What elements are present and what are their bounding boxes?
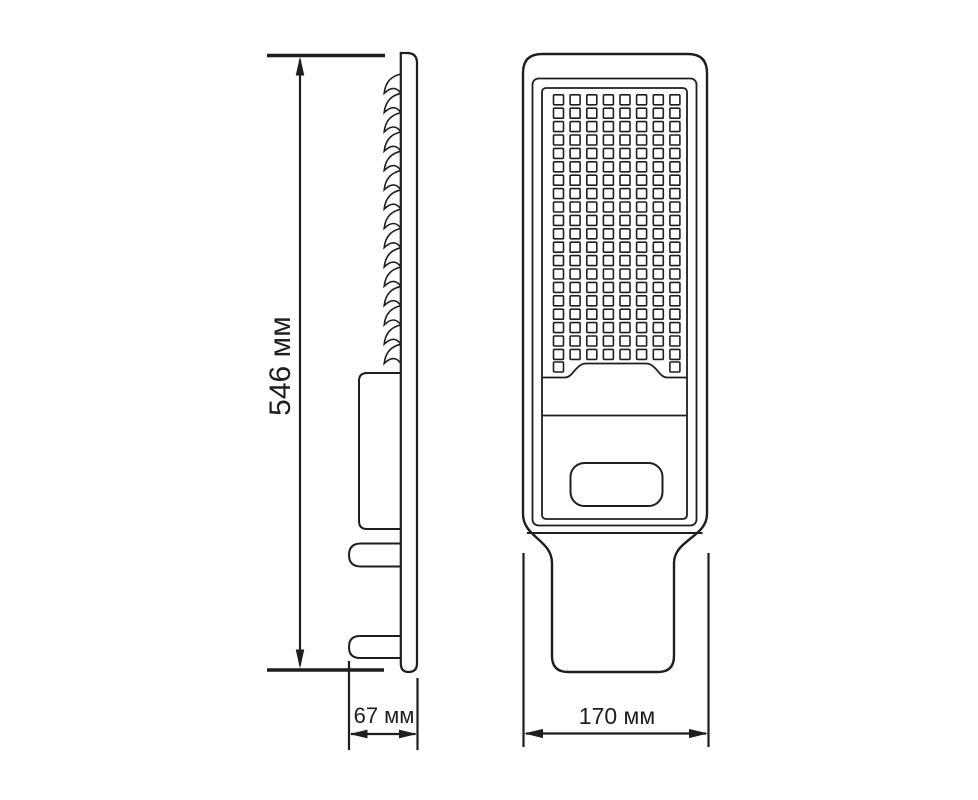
- fin-blade: [384, 151, 401, 170]
- fin-blade: [384, 325, 401, 344]
- fin-blade: [384, 286, 401, 305]
- led-square: [603, 215, 613, 225]
- led-square: [637, 242, 647, 252]
- led-square: [587, 162, 597, 172]
- led-square: [570, 108, 580, 118]
- led-square: [554, 229, 564, 239]
- led-square: [603, 229, 613, 239]
- led-square: [603, 296, 613, 306]
- led-square: [620, 296, 630, 306]
- led-square: [587, 282, 597, 292]
- depth-arrow-left: [350, 730, 368, 739]
- led-square: [570, 269, 580, 279]
- led-square: [620, 108, 630, 118]
- led-square: [570, 229, 580, 239]
- led-square: [554, 269, 564, 279]
- led-square: [587, 269, 597, 279]
- led-square: [587, 202, 597, 212]
- led-square: [653, 135, 663, 145]
- led-square: [620, 95, 630, 105]
- led-square: [570, 282, 580, 292]
- led-square: [653, 202, 663, 212]
- width-arrow-right: [689, 729, 708, 738]
- side-body-slab: [401, 53, 417, 672]
- led-square: [620, 282, 630, 292]
- led-square: [637, 189, 647, 199]
- led-square: [670, 282, 680, 292]
- led-square: [603, 148, 613, 158]
- led-square: [603, 336, 613, 346]
- led-square: [653, 269, 663, 279]
- led-square: [570, 296, 580, 306]
- led-square: [570, 256, 580, 266]
- led-square: [587, 189, 597, 199]
- led-square: [670, 242, 680, 252]
- led-square: [554, 95, 564, 105]
- led-square: [620, 229, 630, 239]
- led-square: [603, 95, 613, 105]
- depth-dim-label: 67 мм: [354, 703, 415, 728]
- led-square: [620, 323, 630, 333]
- led-square: [587, 148, 597, 158]
- front-view: [523, 54, 707, 672]
- led-square: [554, 135, 564, 145]
- led-square: [620, 309, 630, 319]
- led-square: [554, 148, 564, 158]
- led-square: [603, 189, 613, 199]
- led-square: [554, 349, 564, 359]
- led-square: [653, 336, 663, 346]
- led-square: [670, 135, 680, 145]
- led-square: [554, 282, 564, 292]
- led-square: [637, 282, 647, 292]
- led-square: [653, 148, 663, 158]
- led-square: [653, 215, 663, 225]
- led-square: [603, 309, 613, 319]
- led-square: [653, 162, 663, 172]
- led-square: [587, 215, 597, 225]
- led-square: [554, 189, 564, 199]
- led-square: [653, 189, 663, 199]
- led-square: [587, 349, 597, 359]
- led-square: [653, 242, 663, 252]
- height-arrow-down: [296, 650, 305, 669]
- led-square: [653, 282, 663, 292]
- led-square: [570, 148, 580, 158]
- led-square: [570, 336, 580, 346]
- mounting-tab-lower: [349, 636, 401, 658]
- dimension-height: 546 мм: [264, 56, 385, 671]
- height-dim-label: 546 мм: [264, 316, 297, 416]
- led-square: [620, 122, 630, 132]
- led-square: [587, 242, 597, 252]
- led-square: [554, 256, 564, 266]
- led-square: [637, 296, 647, 306]
- led-square: [603, 256, 613, 266]
- led-square: [554, 122, 564, 132]
- led-square: [620, 175, 630, 185]
- led-square: [587, 135, 597, 145]
- led-square: [637, 108, 647, 118]
- led-square: [570, 309, 580, 319]
- led-square: [670, 256, 680, 266]
- led-square: [670, 362, 680, 372]
- led-square: [653, 122, 663, 132]
- led-square: [570, 215, 580, 225]
- height-arrow-up: [296, 57, 305, 76]
- led-square: [670, 296, 680, 306]
- led-square: [554, 323, 564, 333]
- led-square: [603, 242, 613, 252]
- led-square: [620, 202, 630, 212]
- led-square: [603, 269, 613, 279]
- led-square: [670, 122, 680, 132]
- led-square: [670, 95, 680, 105]
- led-square: [603, 135, 613, 145]
- led-square: [570, 189, 580, 199]
- led-square: [653, 95, 663, 105]
- led-square: [653, 349, 663, 359]
- led-square: [670, 108, 680, 118]
- led-square: [653, 175, 663, 185]
- led-square: [653, 108, 663, 118]
- led-square: [587, 95, 597, 105]
- led-square: [637, 148, 647, 158]
- led-square: [570, 175, 580, 185]
- led-square: [554, 108, 564, 118]
- fin-blade: [384, 344, 401, 363]
- drawing-canvas: 546 мм 67 мм 170 мм: [0, 0, 978, 800]
- led-square: [554, 162, 564, 172]
- fin-blade: [384, 132, 401, 151]
- fin-blade: [384, 209, 401, 228]
- led-square: [587, 108, 597, 118]
- led-square: [603, 108, 613, 118]
- fin-blade: [384, 267, 401, 286]
- led-square: [554, 309, 564, 319]
- fin-blade: [384, 248, 401, 267]
- led-square: [670, 336, 680, 346]
- led-square: [653, 309, 663, 319]
- led-square: [603, 162, 613, 172]
- led-square: [637, 95, 647, 105]
- led-square: [603, 349, 613, 359]
- fin-blade: [384, 306, 401, 325]
- led-square: [637, 135, 647, 145]
- led-square: [670, 323, 680, 333]
- led-square: [603, 202, 613, 212]
- led-square: [670, 189, 680, 199]
- fin-blade: [384, 190, 401, 209]
- fin-blade: [384, 171, 401, 190]
- dimension-depth: 67 мм: [349, 661, 418, 750]
- fin-blade: [384, 113, 401, 132]
- side-view: [349, 53, 417, 672]
- led-square: [653, 296, 663, 306]
- led-square: [620, 189, 630, 199]
- led-square: [620, 242, 630, 252]
- led-square: [637, 162, 647, 172]
- led-square: [570, 162, 580, 172]
- led-square: [587, 336, 597, 346]
- led-square: [554, 362, 564, 372]
- led-square: [637, 269, 647, 279]
- led-square: [670, 269, 680, 279]
- led-square: [587, 296, 597, 306]
- heat-sink-fins: [384, 74, 401, 364]
- led-square: [603, 175, 613, 185]
- technical-drawing: 546 мм 67 мм 170 мм: [0, 0, 978, 800]
- led-square: [603, 282, 613, 292]
- led-square: [620, 215, 630, 225]
- led-square: [670, 229, 680, 239]
- led-square: [587, 229, 597, 239]
- led-square: [653, 256, 663, 266]
- led-square: [603, 323, 613, 333]
- led-square: [620, 269, 630, 279]
- fin-blade: [384, 93, 401, 112]
- led-square: [587, 122, 597, 132]
- led-square: [637, 202, 647, 212]
- led-square: [570, 135, 580, 145]
- led-square: [570, 122, 580, 132]
- led-square: [620, 162, 630, 172]
- led-square: [554, 202, 564, 212]
- led-square: [554, 336, 564, 346]
- led-square: [570, 202, 580, 212]
- led-square: [554, 175, 564, 185]
- led-square: [670, 162, 680, 172]
- led-square: [637, 349, 647, 359]
- led-square: [587, 175, 597, 185]
- led-square: [554, 296, 564, 306]
- led-square: [570, 323, 580, 333]
- led-square: [653, 323, 663, 333]
- led-square: [587, 256, 597, 266]
- led-square: [620, 336, 630, 346]
- led-square: [554, 242, 564, 252]
- led-square: [620, 256, 630, 266]
- width-dim-label: 170 мм: [579, 703, 655, 729]
- led-square: [637, 256, 647, 266]
- led-square: [637, 323, 647, 333]
- led-square: [670, 215, 680, 225]
- fin-blade: [384, 228, 401, 247]
- led-square: [637, 336, 647, 346]
- led-square: [670, 202, 680, 212]
- led-square: [603, 122, 613, 132]
- depth-arrow-right: [399, 730, 417, 739]
- led-square: [620, 349, 630, 359]
- led-square: [570, 349, 580, 359]
- led-square: [570, 95, 580, 105]
- led-square: [670, 175, 680, 185]
- led-square: [587, 309, 597, 319]
- led-square: [670, 349, 680, 359]
- driver-housing: [359, 373, 401, 529]
- led-square: [637, 215, 647, 225]
- led-square: [554, 215, 564, 225]
- fin-blade: [384, 74, 401, 93]
- led-square: [670, 148, 680, 158]
- led-square: [653, 229, 663, 239]
- led-square: [637, 175, 647, 185]
- led-square: [637, 229, 647, 239]
- led-square: [637, 122, 647, 132]
- led-square: [620, 135, 630, 145]
- led-square: [587, 323, 597, 333]
- led-square: [670, 309, 680, 319]
- led-square: [620, 148, 630, 158]
- led-square: [570, 242, 580, 252]
- mounting-tab-upper: [349, 544, 401, 567]
- width-arrow-left: [524, 729, 543, 738]
- led-square: [637, 309, 647, 319]
